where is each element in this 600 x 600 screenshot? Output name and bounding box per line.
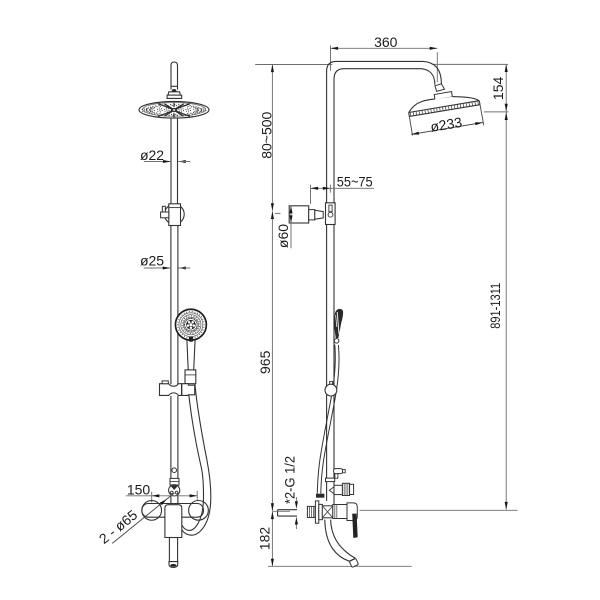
svg-text:182: 182 [257, 527, 273, 551]
svg-text:ø60: ø60 [275, 224, 291, 248]
svg-text:150: 150 [127, 482, 151, 498]
svg-text:965: 965 [257, 350, 273, 374]
svg-text:ø22: ø22 [140, 147, 164, 163]
svg-text:ø25: ø25 [140, 252, 164, 268]
svg-text:360: 360 [374, 34, 398, 50]
svg-text:*2-G 1/2: *2-G 1/2 [281, 456, 297, 504]
svg-text:891-1311: 891-1311 [487, 283, 503, 329]
svg-text:154: 154 [490, 77, 506, 101]
svg-text:55~75: 55~75 [337, 174, 373, 190]
